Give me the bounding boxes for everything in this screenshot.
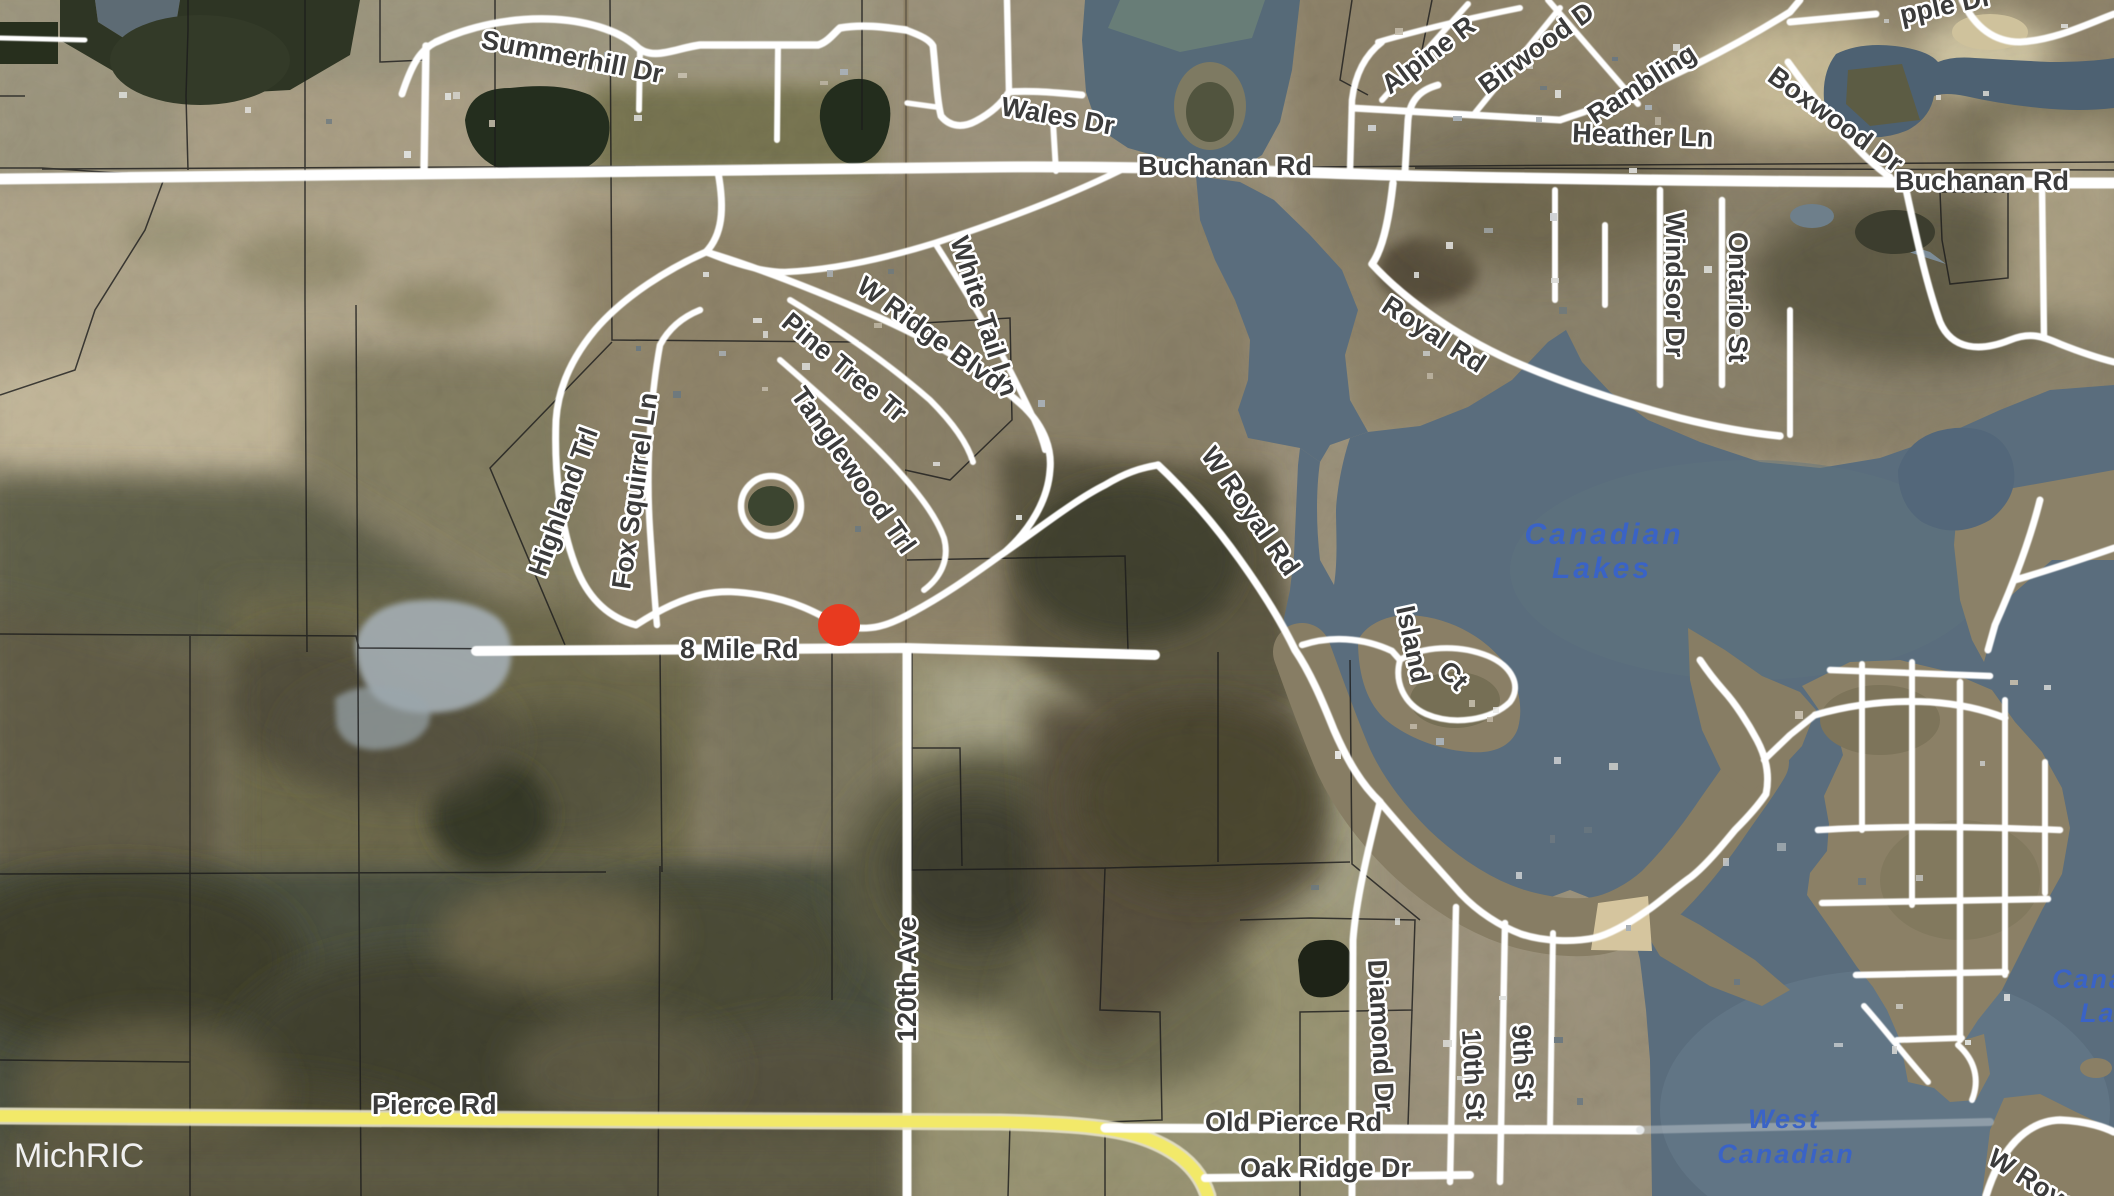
- svg-text:8 Mile Rd: 8 Mile Rd: [680, 634, 799, 664]
- svg-text:120th Ave: 120th Ave: [892, 916, 922, 1042]
- svg-text:Buchanan Rd: Buchanan Rd: [1138, 151, 1312, 181]
- svg-text:La: La: [2080, 998, 2114, 1028]
- svg-text:Ontario St: Ontario St: [1723, 232, 1753, 363]
- svg-text:Canadian: Canadian: [1524, 518, 1683, 551]
- svg-text:Oak Ridge Dr: Oak Ridge Dr: [1240, 1153, 1412, 1183]
- svg-text:Windsor Dr: Windsor Dr: [1660, 212, 1690, 358]
- svg-text:Pierce Rd: Pierce Rd: [372, 1090, 497, 1120]
- svg-text:MichRIC: MichRIC: [14, 1137, 144, 1175]
- svg-text:Lakes: Lakes: [1552, 552, 1652, 585]
- svg-text:Buchanan Rd: Buchanan Rd: [1895, 166, 2069, 196]
- svg-text:Cana: Cana: [2052, 964, 2114, 994]
- svg-text:West: West: [1748, 1104, 1820, 1134]
- svg-text:9th St: 9th St: [1506, 1024, 1540, 1100]
- svg-text:Old Pierce Rd: Old Pierce Rd: [1205, 1107, 1382, 1137]
- svg-text:Canadian: Canadian: [1717, 1139, 1855, 1169]
- svg-text:10th St: 10th St: [1456, 1029, 1491, 1120]
